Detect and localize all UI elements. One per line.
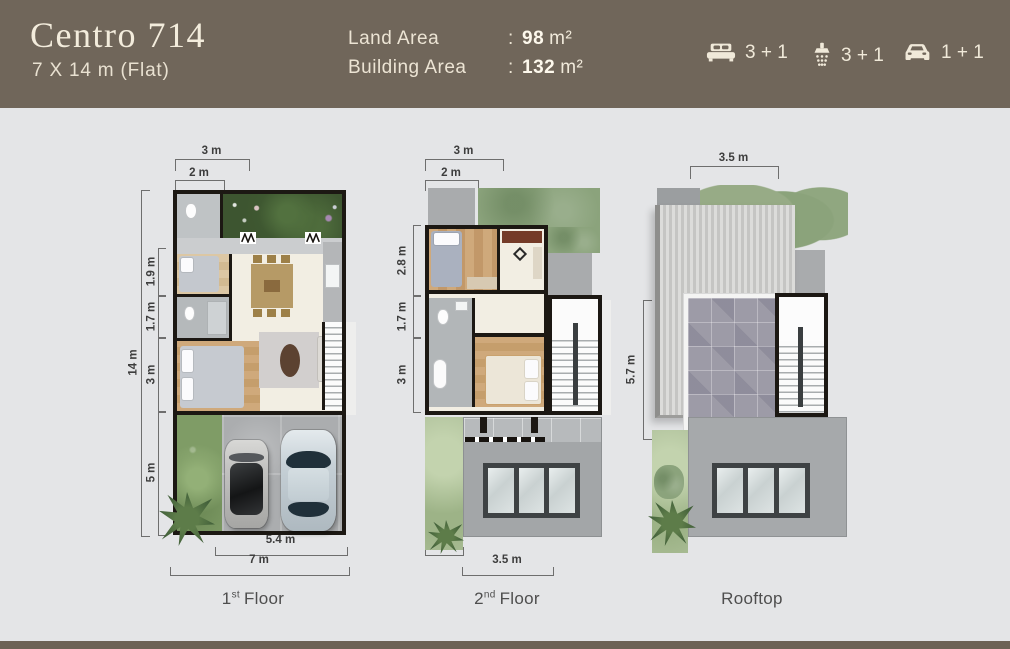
dim-bracket — [643, 300, 652, 440]
stairwell — [775, 293, 828, 417]
bush — [654, 465, 684, 499]
dim-label: 3.5 m — [690, 152, 777, 164]
footer-bar — [0, 641, 1010, 649]
skylight-window — [712, 463, 810, 518]
concrete-pad — [793, 250, 825, 294]
dim-bracket — [690, 166, 779, 179]
floor-label: Rooftop — [680, 589, 820, 609]
floorplan-rooftop: 3.5 m 5.7 m Rooftop — [0, 0, 1010, 649]
concrete-pad — [657, 188, 700, 205]
brochure-page: Centro 714 7 X 14 m (Flat) Land Area : 9… — [0, 0, 1010, 649]
stair-handrail — [798, 327, 803, 407]
dim-label: 5.7 m — [625, 348, 638, 392]
